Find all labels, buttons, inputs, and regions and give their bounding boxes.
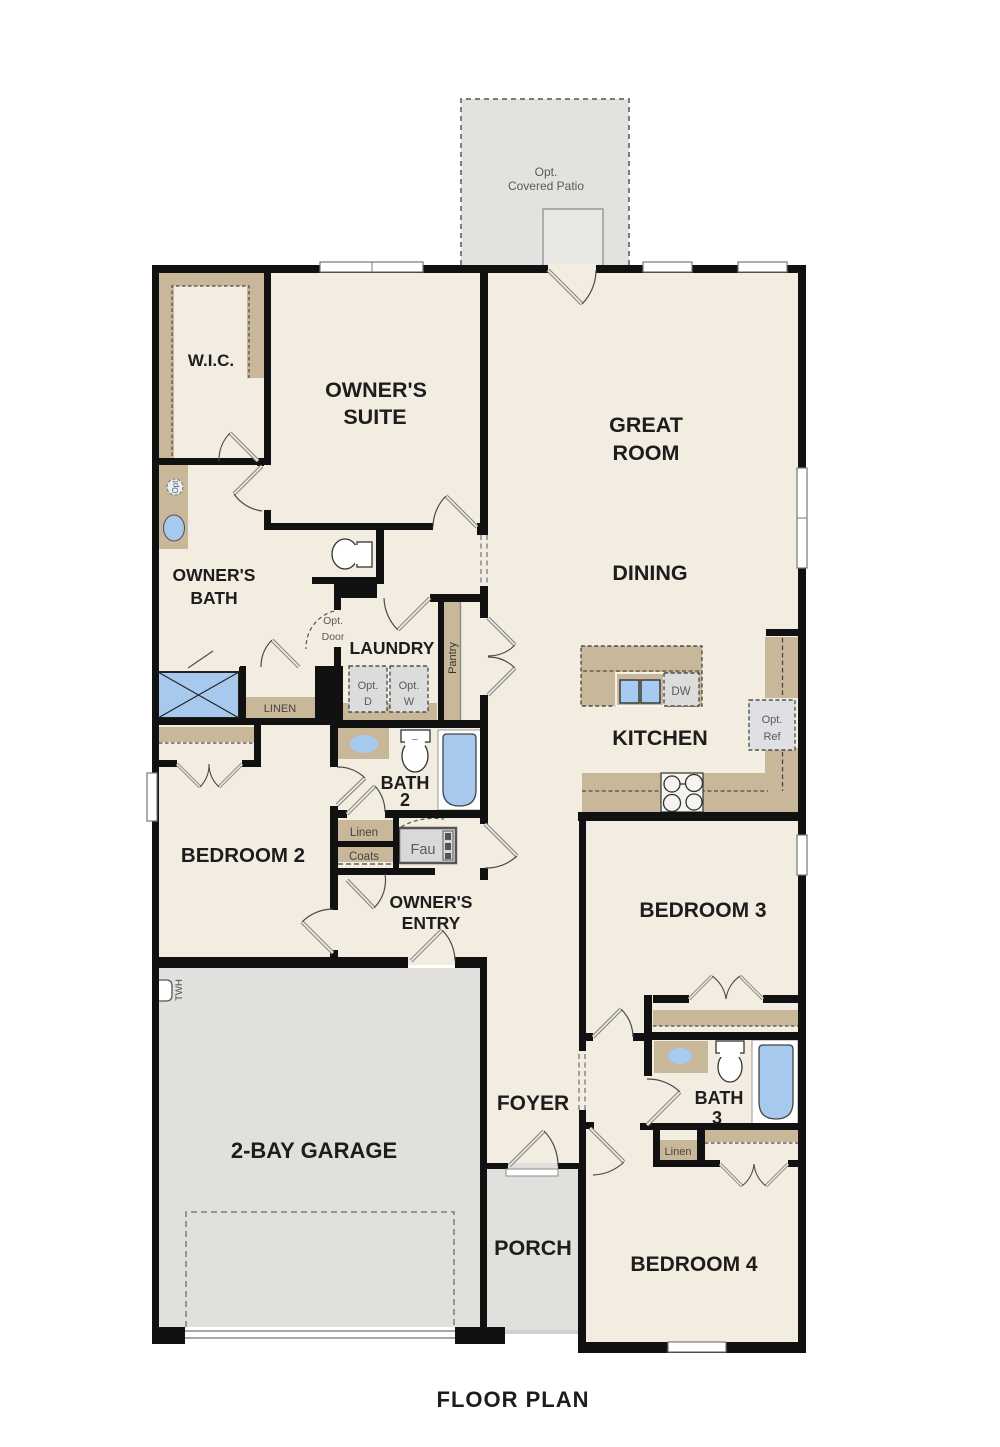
- svg-text:Opt.: Opt.: [323, 615, 343, 627]
- svg-text:Door: Door: [322, 631, 345, 643]
- svg-text:2: 2: [400, 790, 410, 810]
- svg-text:Opt.: Opt.: [399, 680, 420, 692]
- svg-text:Ref: Ref: [763, 731, 781, 743]
- svg-text:W.I.C.: W.I.C.: [188, 351, 234, 370]
- svg-text:Opt: Opt: [171, 480, 180, 494]
- svg-text:Opt.: Opt.: [358, 680, 379, 692]
- svg-text:LINEN: LINEN: [264, 703, 296, 715]
- svg-text:ROOM: ROOM: [613, 441, 680, 465]
- svg-text:BATH: BATH: [695, 1088, 744, 1108]
- svg-text:D: D: [364, 696, 372, 708]
- svg-text:3: 3: [712, 1108, 722, 1128]
- svg-text:BEDROOM 3: BEDROOM 3: [639, 899, 766, 922]
- svg-text:ENTRY: ENTRY: [402, 913, 461, 933]
- svg-text:FOYER: FOYER: [497, 1092, 569, 1115]
- svg-text:Linen: Linen: [350, 827, 378, 839]
- svg-text:DINING: DINING: [612, 561, 687, 585]
- svg-text:Covered Patio: Covered Patio: [508, 179, 584, 193]
- svg-text:Fau: Fau: [411, 842, 436, 858]
- svg-text:Coats: Coats: [349, 851, 379, 863]
- svg-text:OWNER'S: OWNER'S: [325, 378, 427, 402]
- svg-text:GREAT: GREAT: [609, 413, 683, 437]
- svg-text:2-BAY GARAGE: 2-BAY GARAGE: [231, 1138, 397, 1163]
- svg-text:FLOOR PLAN: FLOOR PLAN: [437, 1387, 590, 1412]
- svg-text:TWH: TWH: [174, 979, 185, 1001]
- svg-text:BEDROOM 4: BEDROOM 4: [630, 1253, 758, 1276]
- svg-text:KITCHEN: KITCHEN: [612, 726, 708, 750]
- svg-text:Linen: Linen: [665, 1146, 692, 1158]
- svg-text:Pantry: Pantry: [447, 642, 459, 674]
- svg-text:Opt.: Opt.: [535, 165, 558, 179]
- svg-text:OWNER'S: OWNER'S: [390, 892, 473, 912]
- svg-text:BATH: BATH: [190, 588, 237, 608]
- svg-text:Opt.: Opt.: [762, 714, 783, 726]
- svg-text:DW: DW: [671, 686, 690, 698]
- svg-text:LAUNDRY: LAUNDRY: [350, 638, 435, 658]
- svg-text:SUITE: SUITE: [343, 405, 406, 429]
- svg-text:PORCH: PORCH: [494, 1236, 572, 1260]
- svg-text:OWNER'S: OWNER'S: [173, 565, 256, 585]
- svg-text:W: W: [404, 696, 415, 708]
- svg-text:BEDROOM 2: BEDROOM 2: [181, 844, 305, 867]
